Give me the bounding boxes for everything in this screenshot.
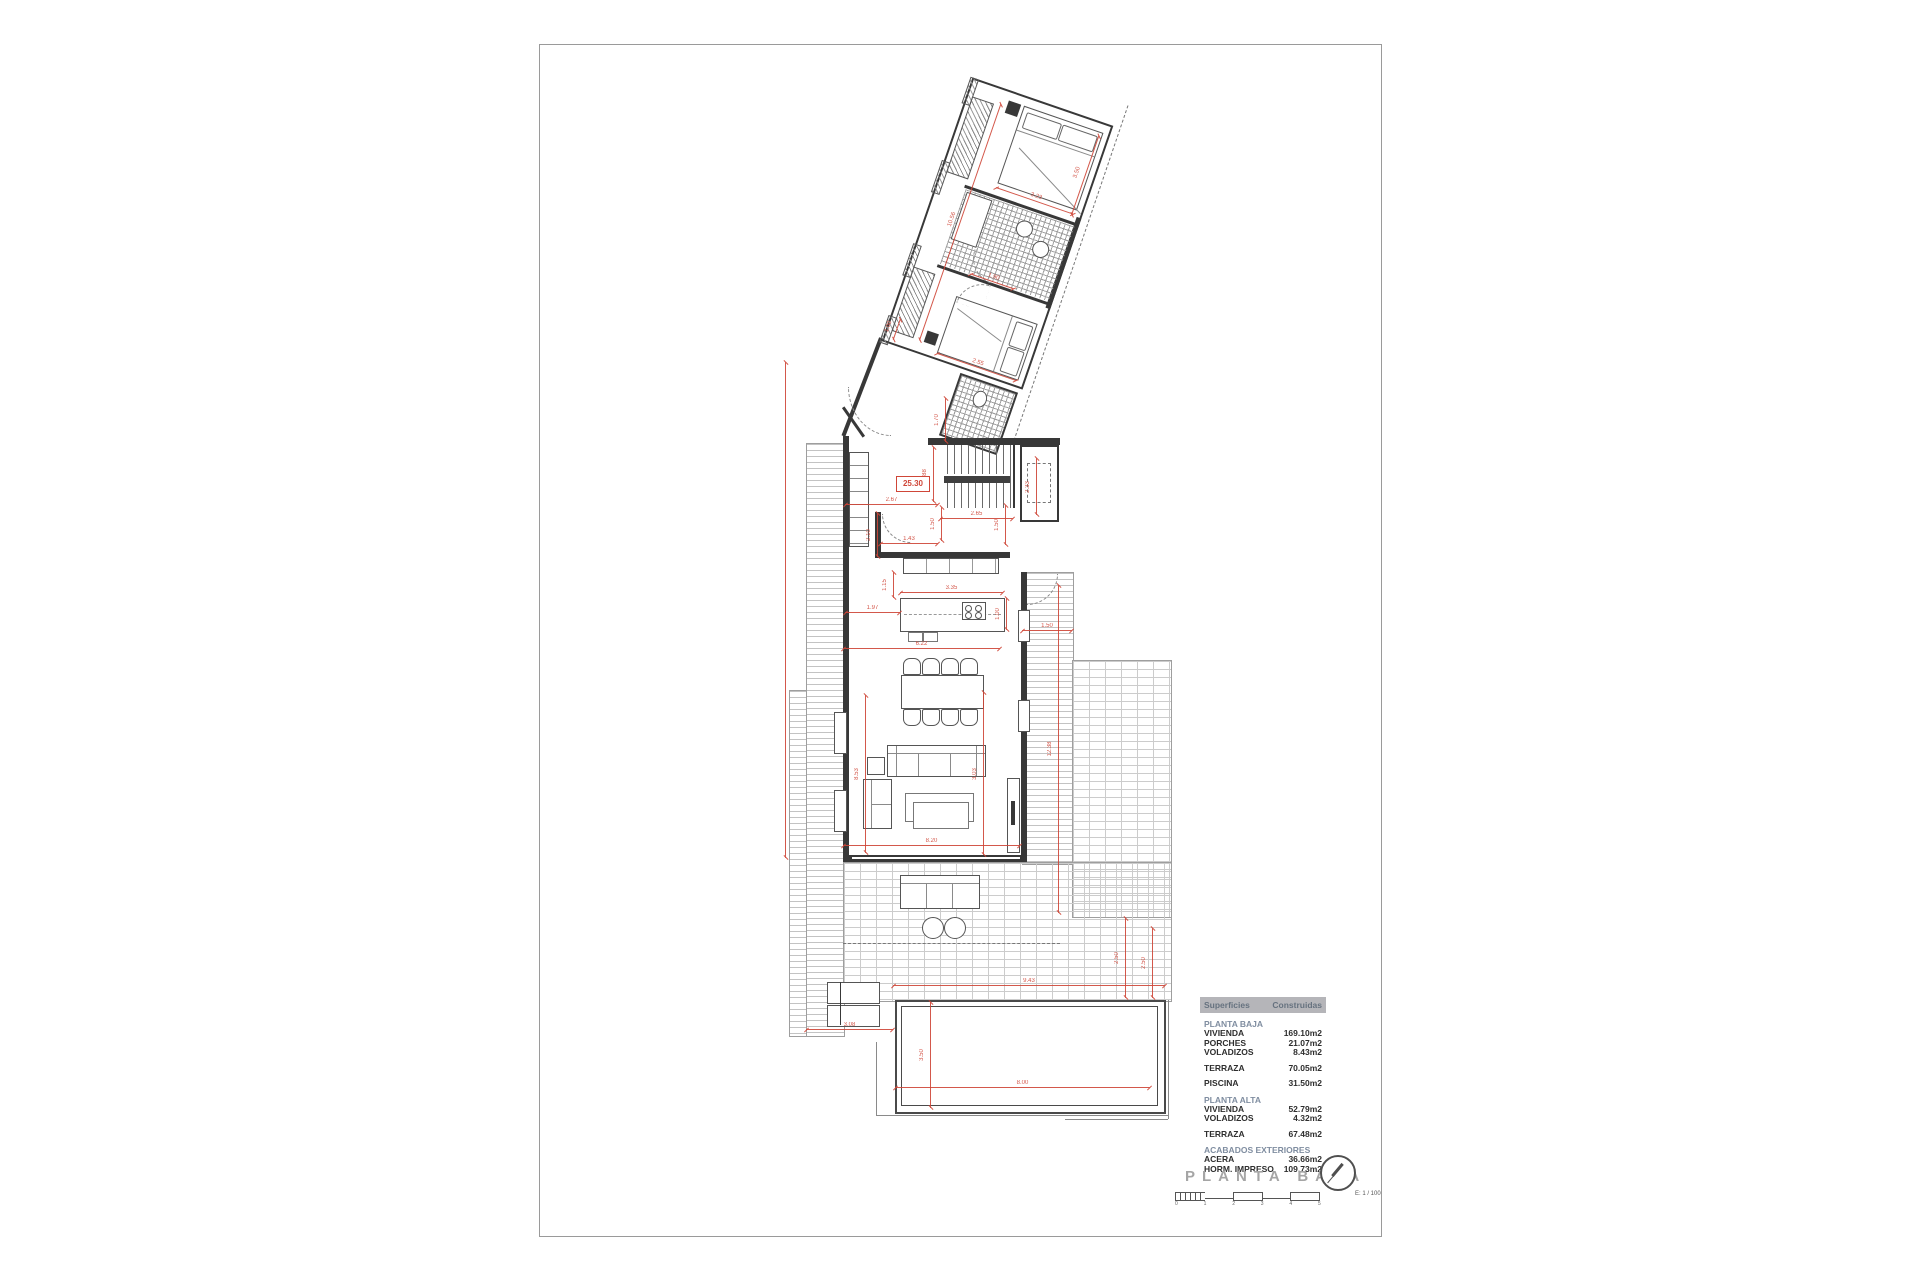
north-wall [928,438,1060,445]
table-row-value: 4.32m2 [1293,1114,1322,1124]
stair-handrail [944,474,1010,483]
scale-bar-zigzag [1175,1192,1205,1201]
dimension-label: 10.56 [947,211,958,227]
pouf [922,917,944,939]
table-row-label: VOLADIZOS [1204,1114,1254,1124]
south-terrace-grid [843,862,1172,1002]
pouf [944,917,966,939]
table-row-value: 67.48m2 [1288,1130,1322,1140]
west-sidewalk-outer-hatch [789,690,807,1037]
deck-edge [876,1115,1168,1116]
window-jamb [834,790,847,832]
tv-cabinet [1007,778,1020,853]
dining-table [901,675,984,709]
toilet [971,389,990,410]
sofa-two-seat [863,779,892,829]
scale-number: 4 [1289,1201,1292,1207]
table-row: VOLADIZOS4.32m2 [1200,1114,1326,1124]
pool [895,1000,1166,1114]
window-jamb [1018,700,1030,732]
deck-edge [1168,1000,1169,1119]
kitchen-wall-side [875,512,881,558]
terrace-dashed-line [843,943,1060,944]
scale-bar-box [1290,1192,1320,1201]
dining-chair [941,709,959,726]
outdoor-sofa [900,875,980,909]
stool [908,632,923,642]
coffee-table-lower [913,802,969,829]
table-header: Superficies Construidas [1200,997,1326,1013]
dimension-label: 3.50 [1072,166,1081,179]
floor-plan-sheet: 3.231.903.502.5510.561.00 [0,0,1920,1280]
scale-bar-box [1233,1192,1263,1201]
table-sections: PLANTA BAJAVIVIENDA169.10m2PORCHES21.07m… [1200,1019,1326,1174]
table-row-label: TERRAZA [1204,1064,1245,1074]
deck-edge [1065,1119,1168,1120]
scale-number: 3 [1261,1201,1264,1207]
dining-chair [960,658,978,675]
dining-chair [960,709,978,726]
dimension-label: 3.23 [1030,192,1043,201]
surface-summary-table: Superficies Construidas PLANTA BAJAVIVIE… [1200,997,1326,1174]
dining-chair [922,709,940,726]
scale-bar: 012345 [1175,1186,1365,1206]
scale-number: 2 [1232,1201,1235,1207]
scale-number: 1 [1204,1201,1207,1207]
dimension-label: 2.55 [971,358,984,367]
table-row-label: TERRAZA [1204,1130,1245,1140]
kitchen-island [900,598,1005,632]
void-dashed [1027,463,1051,503]
dining-chair [903,709,921,726]
table-row-label: VOLADIZOS [1204,1048,1254,1058]
table-row: PISCINA31.50m2 [1200,1079,1326,1089]
equipment-unit [827,982,878,1027]
table-row: VOLADIZOS8.43m2 [1200,1048,1326,1058]
scale-number: 0 [1175,1201,1178,1207]
total-length-label: 25.30 [896,476,930,492]
stove [962,602,986,620]
dining-chair [903,658,921,675]
scale-number: 5 [1318,1201,1321,1207]
table-row: TERRAZA67.48m2 [1200,1130,1326,1140]
table-section-header: PLANTA ALTA [1200,1095,1326,1105]
dimension-line: 1.00 [893,319,901,340]
dimension-line: 3.23 [996,187,1074,215]
hall-cabinet [849,452,869,547]
dining-chair [922,658,940,675]
dimension-line: 1.90 [970,273,1014,289]
table-header-col1: Superficies [1204,1000,1250,1010]
table-row: TERRAZA70.05m2 [1200,1064,1326,1074]
scale-ratio-text: E: 1 / 100 [1355,1191,1381,1197]
table-row-value: 8.43m2 [1293,1048,1322,1058]
stool [923,632,938,642]
kitchen-counter [903,558,999,574]
dining-chair [941,658,959,675]
table-row-label: PISCINA [1204,1079,1238,1089]
south-glazing [852,857,1020,859]
ne-room [1020,445,1059,522]
side-table [867,757,885,775]
deck-edge [876,1042,877,1116]
table-row-value: 70.05m2 [1288,1064,1322,1074]
window-jamb [834,712,847,754]
window-jamb [1018,610,1030,642]
tv [1011,801,1015,825]
dimension-label: 1.90 [987,272,1000,281]
sofa-three-seat [887,745,986,777]
table-header-col2: Construidas [1272,1000,1322,1010]
table-row-value: 31.50m2 [1288,1079,1322,1089]
